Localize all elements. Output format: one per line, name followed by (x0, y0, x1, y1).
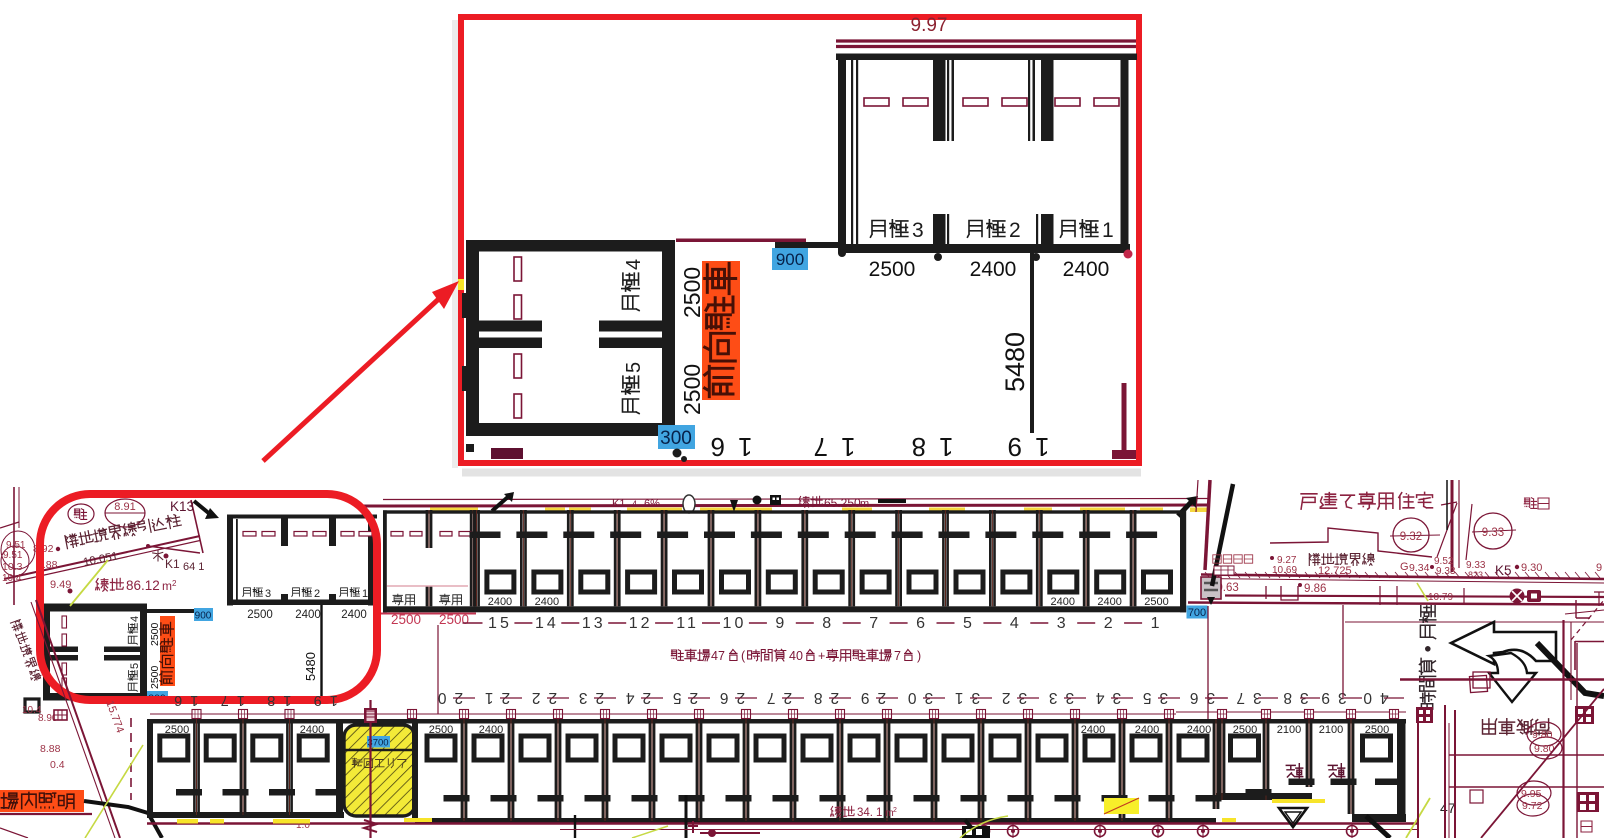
svg-text:2500: 2500 (247, 609, 273, 621)
svg-text:14: 14 (535, 615, 559, 632)
svg-text:5: 5 (129, 663, 141, 669)
svg-text:G: G (1400, 561, 1409, 573)
svg-text:11: 11 (676, 615, 699, 632)
svg-text:3: 3 (265, 588, 271, 600)
svg-text:2500: 2500 (869, 258, 916, 281)
svg-text:4: 4 (1010, 615, 1022, 632)
svg-text:9.86: 9.86 (1304, 583, 1326, 595)
svg-text:2100: 2100 (1277, 724, 1301, 736)
svg-text:5480: 5480 (303, 652, 318, 681)
svg-text:9: 9 (775, 615, 787, 632)
svg-text:6: 6 (916, 615, 928, 632)
svg-text:16: 16 (698, 432, 753, 462)
svg-text:1: 1 (1151, 615, 1163, 632)
svg-text:34.: 34. (857, 807, 873, 819)
svg-text:8.91: 8.91 (114, 501, 135, 513)
svg-text:900: 900 (195, 611, 212, 622)
svg-text:9.33: 9.33 (1482, 527, 1504, 539)
svg-text:9.95: 9.95 (1521, 788, 1542, 800)
svg-text:2: 2 (1009, 219, 1021, 242)
svg-text:): ) (917, 649, 921, 663)
svg-text:17: 17 (213, 692, 245, 708)
svg-text:2400: 2400 (1097, 596, 1121, 608)
svg-text:4: 4 (129, 616, 141, 622)
svg-text:1: 1 (362, 588, 368, 600)
svg-text:2500: 2500 (429, 724, 453, 736)
svg-text:2500: 2500 (149, 622, 161, 646)
svg-text:3: 3 (1057, 615, 1069, 632)
svg-text:3: 3 (912, 219, 924, 242)
svg-text:2400: 2400 (295, 609, 321, 621)
svg-text:1: 1 (1102, 219, 1114, 242)
svg-text:2400: 2400 (479, 724, 503, 736)
svg-text:K1: K1 (612, 498, 625, 510)
svg-text:2400: 2400 (488, 596, 512, 608)
svg-text:1: 1 (876, 807, 882, 819)
svg-text:2: 2 (893, 807, 897, 814)
svg-text:0.4: 0.4 (50, 759, 65, 771)
svg-text:m: m (860, 498, 869, 510)
svg-text:17: 17 (801, 432, 856, 462)
svg-text:2400: 2400 (1081, 724, 1105, 736)
svg-text:2400: 2400 (1063, 258, 1110, 281)
svg-text:2400: 2400 (341, 609, 367, 621)
svg-text:4: 4 (632, 499, 637, 509)
svg-text:18: 18 (899, 432, 954, 462)
svg-text:m: m (162, 579, 172, 593)
svg-text:2400: 2400 (1051, 596, 1075, 608)
svg-text:47: 47 (1440, 800, 1456, 816)
svg-text:9.72: 9.72 (1522, 800, 1543, 812)
svg-text:10.4: 10.4 (2, 573, 22, 584)
svg-text:9.51: 9.51 (3, 550, 23, 561)
svg-text:9.30: 9.30 (1521, 562, 1542, 574)
svg-text:64 1: 64 1 (183, 561, 204, 573)
svg-text:2400: 2400 (1187, 724, 1211, 736)
svg-text:2500: 2500 (165, 724, 189, 736)
svg-text:15: 15 (488, 615, 512, 632)
svg-text:700: 700 (1188, 607, 1206, 619)
svg-text:4: 4 (623, 259, 645, 270)
svg-text:9.97: 9.97 (911, 15, 948, 36)
svg-text:2500: 2500 (149, 665, 161, 689)
svg-text:900: 900 (776, 250, 804, 269)
svg-text:K5: K5 (1495, 563, 1512, 578)
svg-text:2500: 2500 (1233, 724, 1257, 736)
svg-text:37: 37 (1228, 689, 1261, 706)
svg-text:300: 300 (660, 428, 692, 449)
svg-text:16: 16 (166, 692, 198, 708)
svg-text:7: 7 (869, 615, 881, 632)
svg-text:9.80: 9.80 (1532, 729, 1553, 741)
svg-text:8: 8 (822, 615, 834, 632)
svg-text:2: 2 (172, 579, 177, 588)
svg-text:10.3: 10.3 (2, 561, 23, 573)
svg-text:2400: 2400 (535, 596, 559, 608)
svg-text:2: 2 (314, 588, 320, 600)
svg-text:2400: 2400 (300, 724, 324, 736)
svg-text:47: 47 (711, 649, 725, 663)
svg-text:K13: K13 (170, 499, 194, 514)
svg-text:9.32: 9.32 (1400, 531, 1422, 543)
svg-text:+: + (818, 649, 825, 663)
svg-text:5480: 5480 (1000, 332, 1030, 392)
svg-text:9.49: 9.49 (50, 579, 71, 591)
svg-text:40: 40 (789, 649, 803, 663)
svg-text:2500: 2500 (679, 364, 705, 415)
svg-text:2500: 2500 (1365, 724, 1389, 736)
svg-text:9: 9 (1596, 562, 1602, 574)
svg-text:19: 19 (306, 692, 338, 708)
svg-text:9.33: 9.33 (1436, 566, 1456, 577)
svg-text:9.34: 9.34 (1409, 562, 1430, 574)
svg-text:7: 7 (894, 649, 901, 663)
svg-text:2100: 2100 (1319, 724, 1343, 736)
svg-text:10.79: 10.79 (1428, 592, 1453, 603)
svg-text:6%: 6% (644, 498, 660, 510)
svg-text:5: 5 (963, 615, 975, 632)
svg-text:2400: 2400 (970, 258, 1017, 281)
svg-text:8.88: 8.88 (40, 743, 61, 755)
svg-text:18: 18 (259, 692, 291, 708)
svg-text:10: 10 (723, 615, 747, 632)
svg-text:12: 12 (629, 615, 653, 632)
svg-text:2500: 2500 (679, 267, 705, 318)
svg-text:K1: K1 (165, 557, 180, 571)
svg-text:65.250: 65.250 (824, 496, 861, 510)
svg-text:5: 5 (623, 362, 645, 373)
svg-text:2400: 2400 (1135, 724, 1159, 736)
svg-text:2500: 2500 (1144, 596, 1168, 608)
svg-text:86.12: 86.12 (126, 578, 160, 593)
svg-text:2: 2 (1104, 615, 1116, 632)
svg-text:19: 19 (995, 432, 1050, 462)
svg-text:13: 13 (582, 615, 606, 632)
